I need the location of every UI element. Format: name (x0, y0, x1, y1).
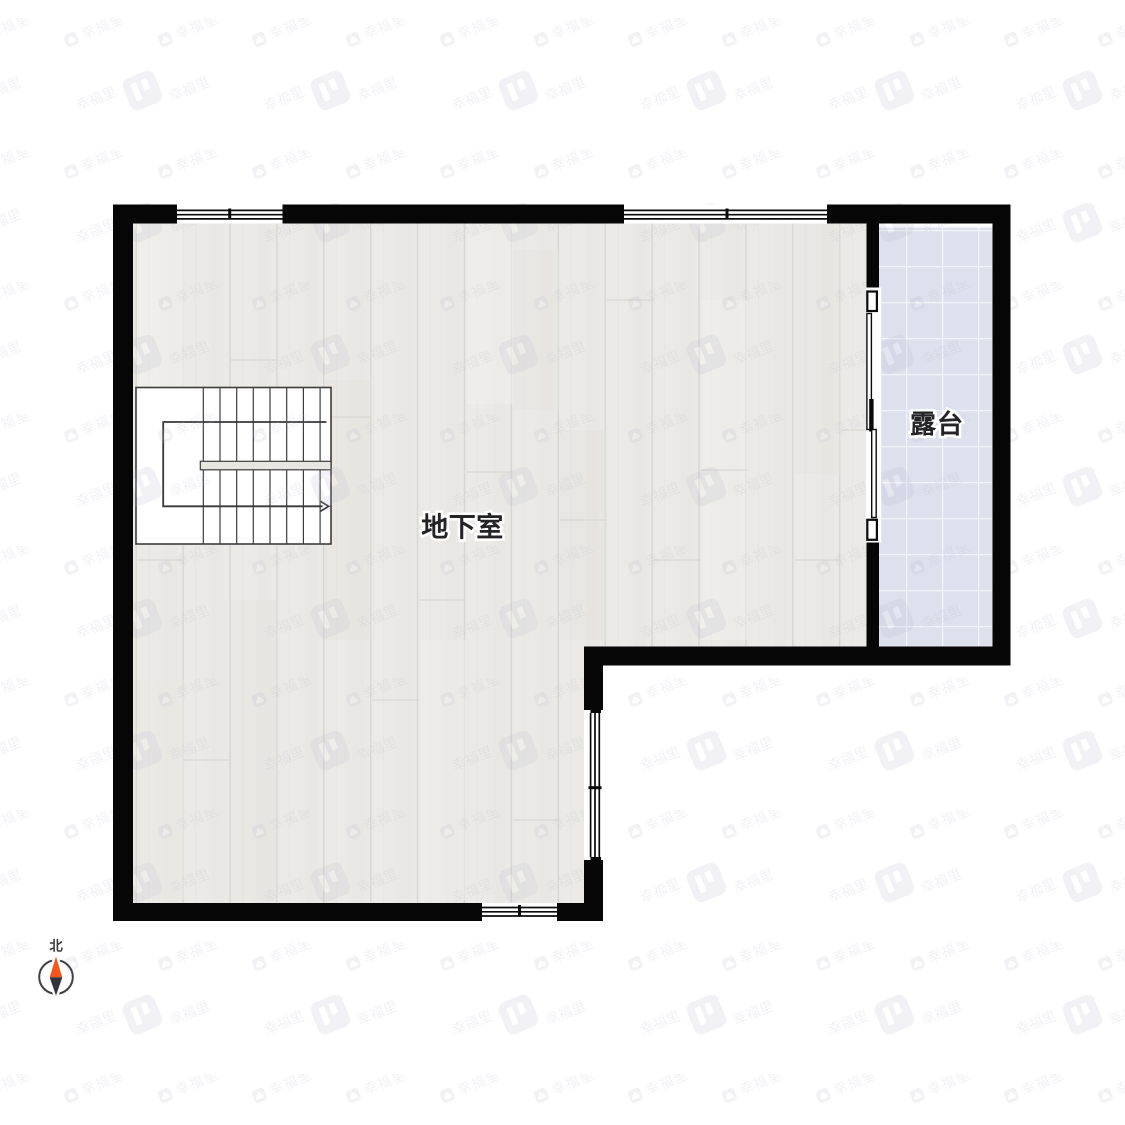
svg-text:地下室: 地下室 (421, 512, 504, 543)
svg-text:北: 北 (49, 939, 63, 954)
svg-text:露台: 露台 (910, 409, 964, 439)
